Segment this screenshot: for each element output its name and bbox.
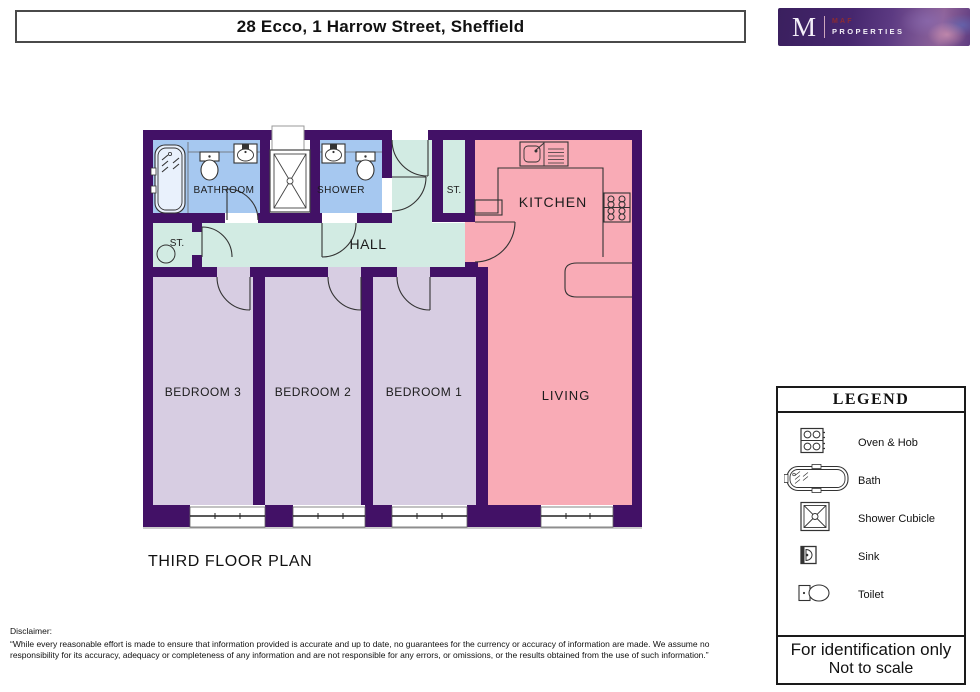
toilet-icon-bathroom: [200, 152, 219, 180]
oven-hob-icon: [799, 427, 827, 460]
legend-items: Oven & Hob Bath: [778, 413, 964, 635]
label-st-top: ST.: [447, 185, 461, 196]
legend-row-bath: Bath: [778, 463, 964, 499]
label-bathroom: BATHROOM: [193, 185, 254, 196]
identification-note: For identification only: [778, 640, 964, 660]
legend-row-sink: Sink: [778, 539, 964, 575]
toilet-icon-shower: [356, 152, 375, 180]
shaft-box: [272, 126, 304, 150]
label-kitchen: KITCHEN: [519, 194, 587, 210]
label-bedroom2: BEDROOM 2: [275, 385, 352, 399]
legend-label-toilet: Toilet: [858, 589, 884, 601]
legend-row-oven: Oven & Hob: [778, 425, 964, 461]
bath-legend-icon: [784, 464, 850, 499]
room-fill-st-top: [443, 140, 465, 213]
legend-title: LEGEND: [778, 388, 964, 413]
floorplan-page: 28 Ecco, 1 Harrow Street, Sheffield M MA…: [0, 0, 980, 692]
shower-cubicle-legend-icon: [799, 501, 831, 538]
legend-footer: For identification only Not to scale: [778, 635, 964, 683]
disclaimer: Disclaimer: “While every reasonable effo…: [10, 626, 755, 661]
legend-row-toilet: Toilet: [778, 577, 964, 613]
disclaimer-heading: Disclaimer:: [10, 626, 755, 636]
bath-icon: [151, 145, 185, 213]
sink-legend-icon: [799, 545, 819, 570]
label-st-left: ST.: [170, 238, 184, 249]
label-bedroom1: BEDROOM 1: [386, 385, 463, 399]
label-living: LIVING: [542, 388, 591, 403]
sink-icon-shower: [322, 144, 345, 163]
disclaimer-body: “While every reasonable effort is made t…: [10, 639, 755, 661]
legend-label-sink: Sink: [858, 551, 879, 563]
legend-label-shower: Shower Cubicle: [858, 513, 935, 525]
scale-note: Not to scale: [778, 660, 964, 678]
plan-caption: THIRD FLOOR PLAN: [148, 553, 312, 571]
sink-icon-bathroom: [234, 144, 257, 163]
label-bedroom3: BEDROOM 3: [165, 385, 242, 399]
shower-cubicle-icon: [270, 150, 310, 212]
toilet-legend-icon: [798, 583, 830, 608]
legend-row-shower: Shower Cubicle: [778, 501, 964, 537]
label-shower: SHOWER: [317, 185, 365, 196]
legend-label-oven: Oven & Hob: [858, 437, 918, 449]
label-hall: HALL: [349, 236, 386, 252]
legend-label-bath: Bath: [858, 475, 881, 487]
legend-box: LEGEND Oven & Hob: [776, 386, 966, 685]
windows: [143, 507, 642, 528]
